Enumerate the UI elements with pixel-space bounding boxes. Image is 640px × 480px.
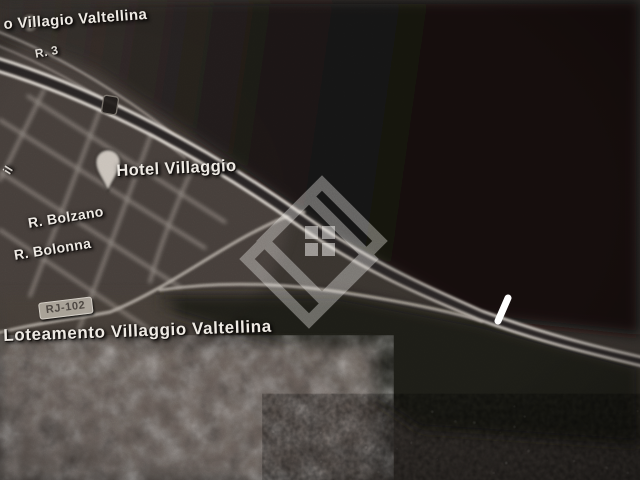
scanned-map-photo: o Villagio Valtellina R. 3 il Hotel Vill… <box>0 0 640 480</box>
satellite-map-image <box>0 0 640 480</box>
vignette-overlay <box>0 0 640 480</box>
